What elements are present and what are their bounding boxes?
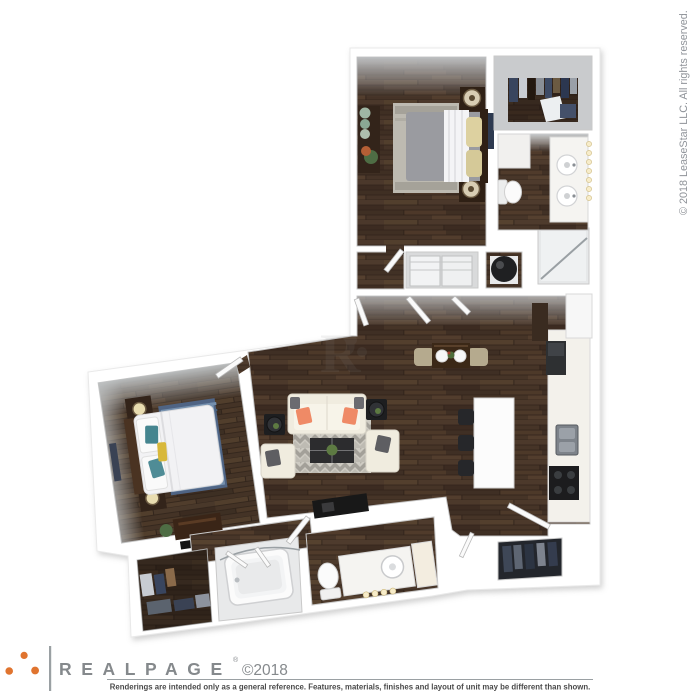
svg-text:Renderings are intended only a: Renderings are intended only as a genera… bbox=[110, 683, 591, 692]
svg-text:© 2018 LeaseStar LLC. All righ: © 2018 LeaseStar LLC. All rights reserve… bbox=[678, 10, 690, 215]
svg-text:R: R bbox=[320, 323, 361, 385]
svg-text:®: ® bbox=[233, 656, 239, 664]
svg-text:©2018: ©2018 bbox=[242, 662, 288, 679]
svg-text:REALPAGE: REALPAGE bbox=[59, 659, 232, 679]
